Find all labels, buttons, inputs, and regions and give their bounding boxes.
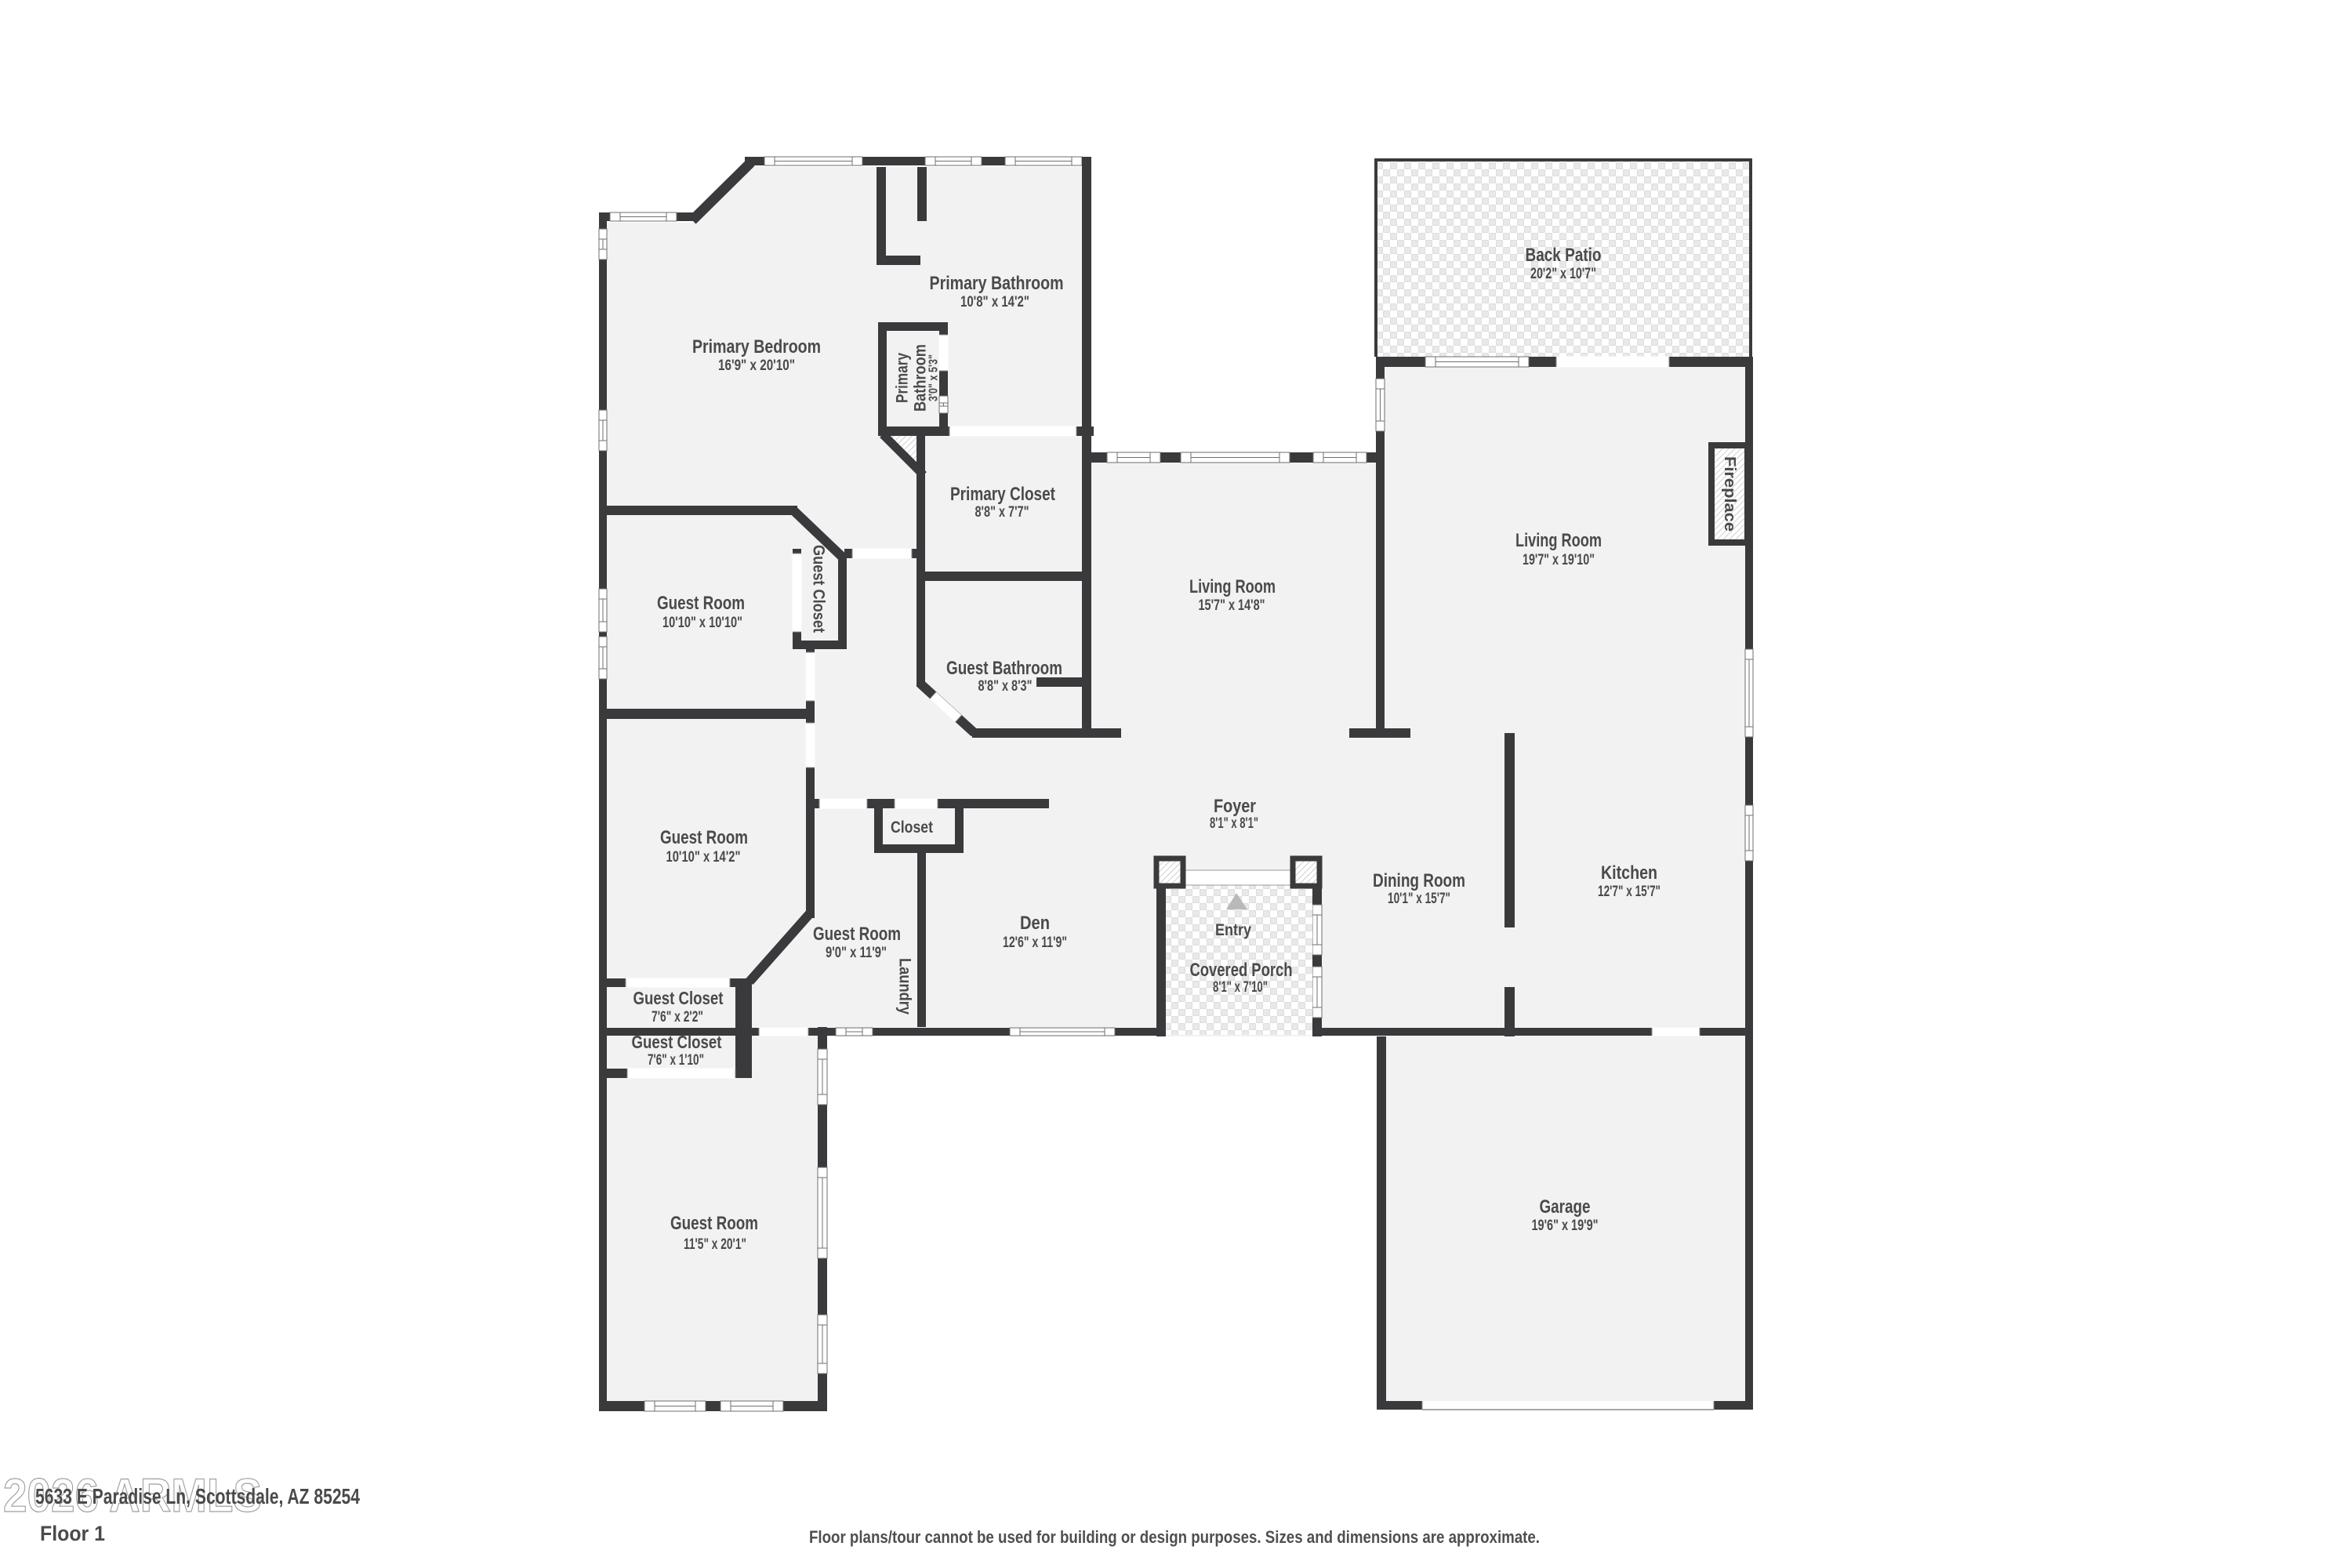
svg-text:Closet: Closet: [891, 818, 933, 837]
svg-text:Primary Bathroom: Primary Bathroom: [930, 273, 1064, 294]
svg-text:Den: Den: [1020, 913, 1050, 934]
svg-text:10'10" x 10'10": 10'10" x 10'10": [662, 615, 742, 631]
svg-text:8'8" x 7'7": 8'8" x 7'7": [975, 504, 1029, 521]
svg-text:16'9" x 20'10": 16'9" x 20'10": [718, 358, 795, 374]
svg-text:Guest Closet: Guest Closet: [632, 1032, 722, 1052]
svg-text:Back Patio: Back Patio: [1526, 245, 1602, 266]
svg-text:Fireplace: Fireplace: [1721, 456, 1738, 532]
svg-text:19'6" x 19'9": 19'6" x 19'9": [1532, 1218, 1599, 1234]
svg-text:Covered Porch: Covered Porch: [1190, 960, 1293, 981]
svg-text:Guest Room: Guest Room: [657, 593, 745, 614]
svg-text:Guest Closet: Guest Closet: [810, 545, 828, 633]
svg-text:Primary Closet: Primary Closet: [950, 484, 1055, 505]
svg-text:Guest Room: Guest Room: [670, 1213, 758, 1234]
svg-text:Living Room: Living Room: [1515, 530, 1602, 551]
svg-text:5633 E Paradise Ln, Scottsdale: 5633 E Paradise Ln, Scottsdale, AZ 85254: [35, 1484, 360, 1508]
svg-text:3'0" x 5'3": 3'0" x 5'3": [927, 354, 941, 401]
svg-text:Kitchen: Kitchen: [1601, 862, 1657, 884]
svg-text:Guest Room: Guest Room: [813, 924, 901, 945]
svg-text:10'10" x 14'2": 10'10" x 14'2": [666, 849, 741, 866]
svg-text:11'5" x 20'1": 11'5" x 20'1": [684, 1236, 746, 1253]
svg-text:10'1" x 15'7": 10'1" x 15'7": [1388, 891, 1450, 907]
svg-text:12'7" x 15'7": 12'7" x 15'7": [1598, 884, 1661, 900]
svg-text:7'6" x 1'10": 7'6" x 1'10": [648, 1052, 704, 1069]
svg-text:8'1" x 7'10": 8'1" x 7'10": [1213, 979, 1268, 996]
svg-text:12'6" x 11'9": 12'6" x 11'9": [1003, 935, 1067, 951]
svg-text:Primary: Primary: [894, 353, 912, 403]
svg-text:19'7" x 19'10": 19'7" x 19'10": [1523, 552, 1595, 568]
svg-text:Guest Closet: Guest Closet: [633, 988, 724, 1008]
svg-text:Guest Room: Guest Room: [660, 827, 748, 848]
svg-text:9'0" x 11'9": 9'0" x 11'9": [826, 945, 887, 961]
svg-text:Floor 1: Floor 1: [40, 1522, 105, 1545]
svg-text:Dining Room: Dining Room: [1373, 870, 1465, 891]
svg-text:10'8" x 14'2": 10'8" x 14'2": [960, 294, 1029, 310]
svg-text:Living Room: Living Room: [1189, 576, 1276, 597]
svg-text:Garage: Garage: [1540, 1196, 1591, 1218]
svg-text:Primary Bedroom: Primary Bedroom: [692, 336, 821, 358]
svg-text:8'8" x 8'3": 8'8" x 8'3": [978, 678, 1033, 695]
svg-text:15'7" x 14'8": 15'7" x 14'8": [1199, 597, 1265, 614]
svg-text:Laundry: Laundry: [896, 958, 914, 1014]
svg-text:Entry: Entry: [1215, 921, 1251, 939]
svg-text:Foyer: Foyer: [1214, 796, 1256, 817]
svg-text:20'2" x 10'7": 20'2" x 10'7": [1530, 266, 1596, 282]
svg-text:7'6" x 2'2": 7'6" x 2'2": [652, 1009, 703, 1025]
svg-text:Floor plans/tour cannot be use: Floor plans/tour cannot be used for buil…: [809, 1527, 1540, 1547]
svg-text:8'1" x 8'1": 8'1" x 8'1": [1210, 815, 1258, 832]
svg-text:Guest Bathroom: Guest Bathroom: [946, 658, 1062, 679]
